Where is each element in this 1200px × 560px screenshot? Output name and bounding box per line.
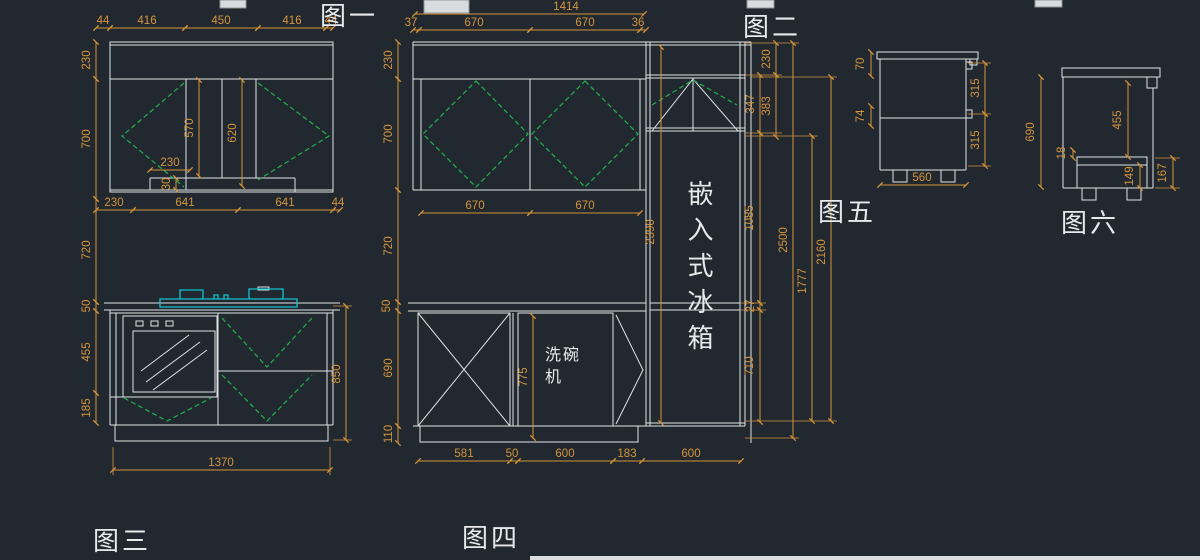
dimension-labels: 44 416 450 416 44 230 700 720 50 455 185…	[81, 1, 1169, 469]
fig6-sideview-geometry	[1062, 68, 1160, 200]
dim-label: 1414	[553, 1, 579, 13]
dim-label: 1370	[208, 457, 234, 469]
dim-label: 44	[332, 197, 345, 209]
oven	[123, 316, 217, 397]
dim-label: 74	[855, 109, 867, 122]
fig4-door-swing-marks	[423, 80, 737, 187]
dim-label: 37	[405, 17, 418, 29]
dim-label: 455	[1112, 110, 1124, 129]
dim-label: 50	[381, 300, 393, 313]
dim-label: 600	[555, 448, 574, 460]
dim-label: 670	[464, 17, 483, 29]
dim-label: 1085	[744, 205, 756, 231]
dim-label: 581	[454, 448, 473, 460]
dim-label: 50	[81, 300, 93, 313]
dim-label: 600	[681, 448, 700, 460]
cad-canvas: 44 416 450 416 44 230 700 720 50 455 185…	[0, 0, 1200, 560]
dim-label: 183	[617, 448, 636, 460]
dim-label: 450	[211, 15, 230, 27]
dim-label: 30	[161, 178, 173, 191]
dim-label: 167	[1157, 163, 1169, 182]
dim-label: 620	[227, 123, 239, 142]
dim-label: 44	[97, 15, 110, 27]
dim-label: 670	[575, 17, 594, 29]
cad-drawing-svg: 44 416 450 416 44 230 700 720 50 455 185…	[0, 0, 1200, 560]
dim-label: 2500	[778, 227, 790, 253]
dim-label: 710	[744, 356, 756, 375]
dim-label: 185	[81, 398, 93, 417]
dim-label: 18	[1056, 147, 1068, 160]
figure-label-5: 图五	[818, 192, 876, 229]
dim-label: 315	[970, 130, 982, 149]
dim-label: 70	[855, 58, 867, 71]
dim-label: 230	[160, 157, 179, 169]
dim-label: 690	[1025, 122, 1037, 141]
dim-label: 230	[383, 50, 395, 69]
dim-label: 1777	[797, 268, 809, 294]
dim-label: 2390	[645, 219, 657, 245]
dim-label: 416	[137, 15, 156, 27]
figure-label-3: 图三	[93, 521, 151, 558]
dim-label: 416	[282, 15, 301, 27]
dim-label: 775	[518, 367, 530, 386]
dim-label: 230	[104, 197, 123, 209]
dim-label: 149	[1124, 166, 1136, 185]
dim-label: 230	[761, 49, 773, 68]
dim-label: 455	[81, 342, 93, 361]
dim-label: 570	[184, 118, 196, 137]
dim-label: 720	[81, 240, 93, 259]
figure-label-2: 图二	[743, 7, 801, 44]
figure-label-6: 图六	[1061, 203, 1119, 240]
dim-label: 50	[506, 448, 519, 460]
dim-label: 383	[761, 96, 773, 115]
figure-label-4: 图四	[462, 518, 520, 555]
cooktop	[160, 289, 297, 307]
fig5-sideview-geometry	[877, 52, 978, 182]
dim-label: 700	[383, 124, 395, 143]
dim-label: 110	[383, 425, 395, 443]
fig3-door-swing-marks	[122, 83, 329, 421]
fig3-elevation-geometry	[104, 42, 340, 441]
dim-label: 36	[632, 17, 645, 29]
dim-label: 700	[81, 129, 93, 148]
built-in-fridge-label: 嵌入式冰箱	[680, 180, 717, 390]
dim-label: 315	[970, 78, 982, 97]
figure-label-1: 图一	[320, 0, 378, 33]
dim-label: 850	[331, 364, 343, 383]
dim-label: 560	[912, 172, 931, 184]
dim-label: 720	[383, 236, 395, 255]
dim-label: 230	[81, 50, 93, 69]
dim-label: 670	[465, 200, 484, 212]
dim-label: 690	[383, 358, 395, 377]
dim-label: 27	[745, 300, 757, 313]
dim-label: 641	[175, 197, 194, 209]
dim-label: 347	[745, 94, 757, 113]
dishwasher-label: 洗碗机	[545, 344, 585, 387]
dim-label: 670	[575, 200, 594, 212]
dim-label: 641	[275, 197, 294, 209]
dim-label: 2160	[816, 239, 828, 265]
